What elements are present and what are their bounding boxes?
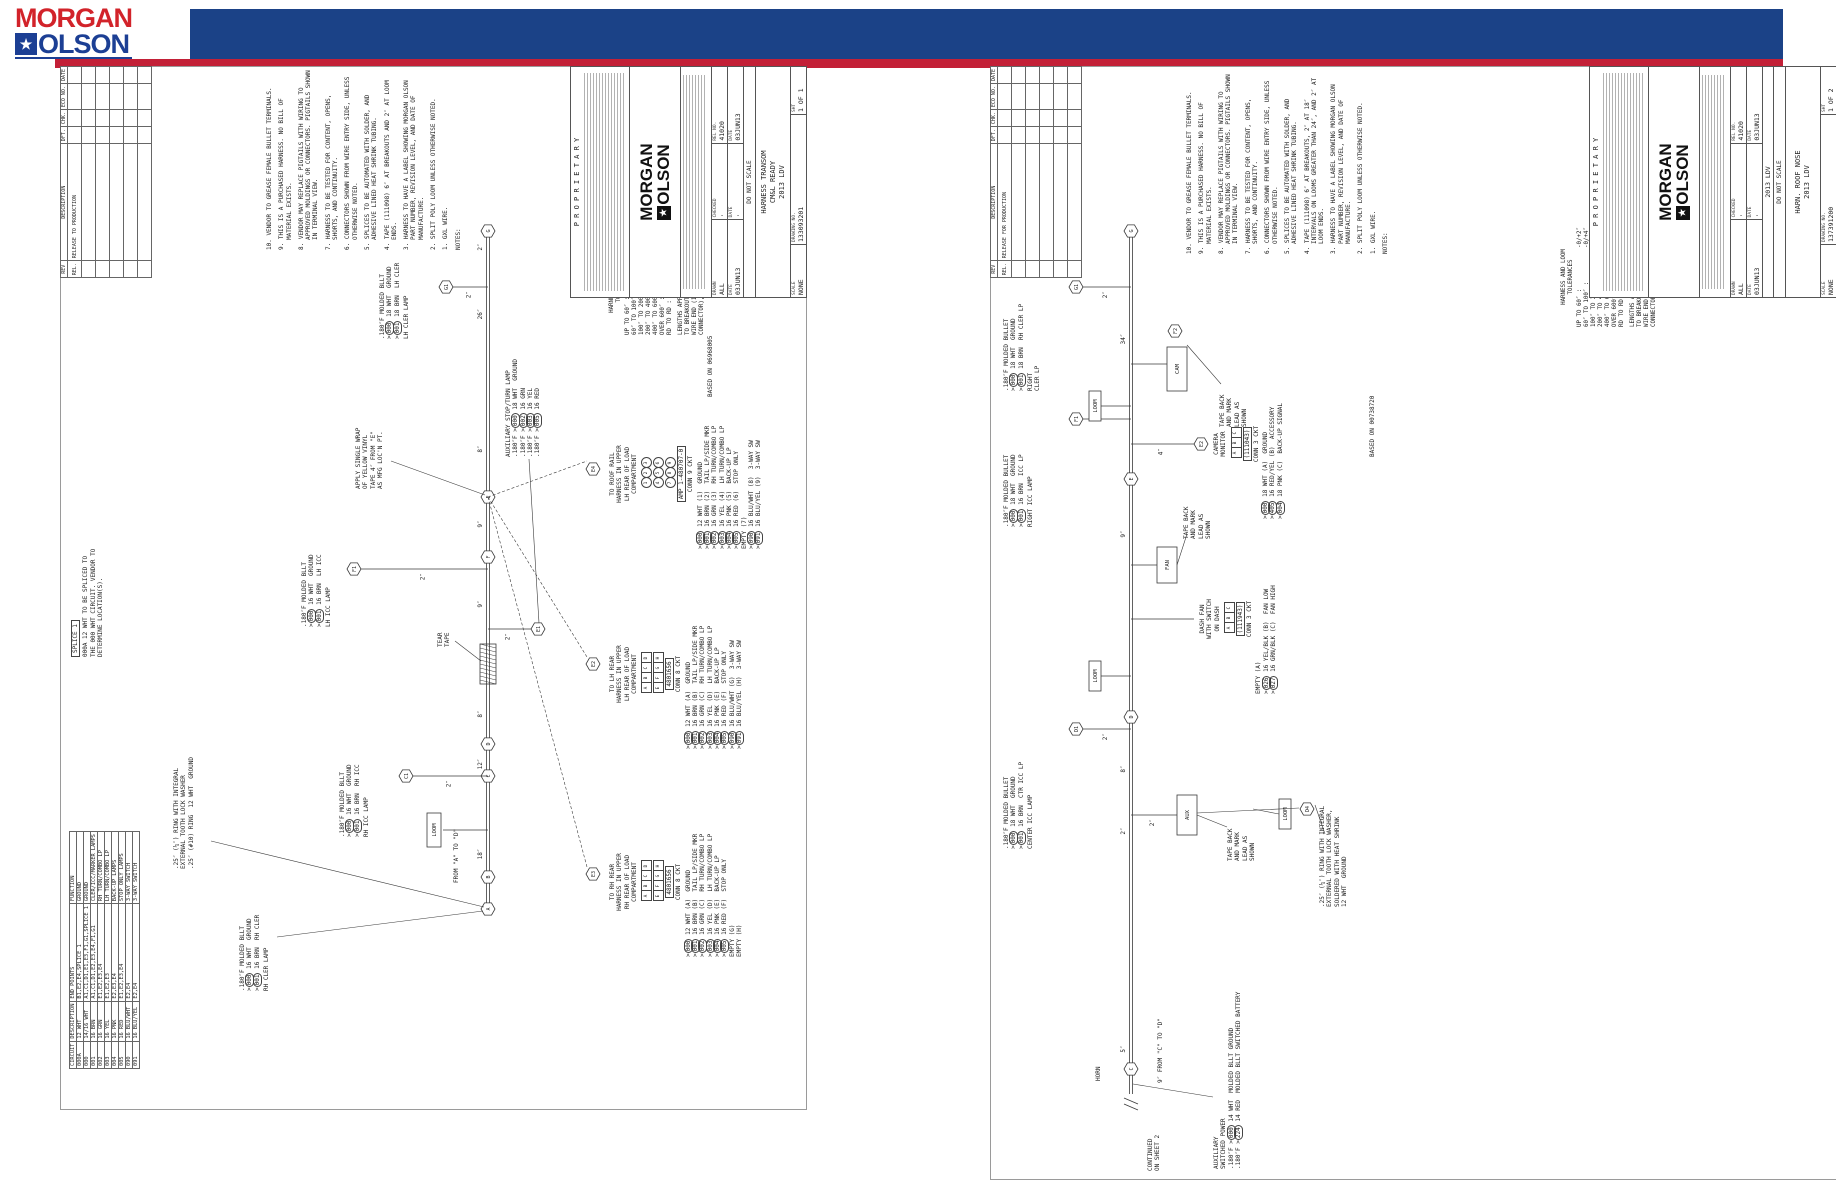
note-item: 10. VENDOR TO GREASE FEMALE BULLET TERMI… — [1186, 70, 1193, 254]
field-drawing-no: DRAWING NO. 133093201 — [791, 115, 806, 245]
circuit-row: 00516 REDE1,E2,E3,E4STOP ONLY LAMPS — [119, 832, 126, 1069]
svg-text:2″: 2″ — [1102, 733, 1109, 740]
title-block: P R O P R I E T A R Y MORGAN ★ OLSON DRA… — [570, 66, 807, 298]
circuit-cell: 16 GRN — [98, 1001, 105, 1041]
circuit-row: 00116 BRNA1,C1,D1,E2,E3,E4,F1,G1CLER/ICC… — [91, 832, 98, 1069]
circuit-cell: 12 WHT — [77, 1001, 84, 1041]
revision-cell — [138, 261, 152, 278]
svg-text:2″: 2″ — [466, 291, 473, 298]
svg-text:E1: E1 — [536, 626, 542, 632]
svg-text:5″: 5″ — [1120, 1045, 1127, 1052]
circuit-cell: 16 RED — [119, 1001, 126, 1041]
revision-cell — [82, 127, 96, 144]
tolerance-range: RD TO RD : — [667, 300, 674, 335]
circuit-row: 00014/16 WHTA1,C1,D1,E1,E3,F1,G1,SPLICE … — [84, 832, 91, 1069]
note-item: 3. HARNESS TO HAVE A LABEL SHOWING MORGA… — [1330, 70, 1352, 254]
svg-text:8″: 8″ — [477, 445, 484, 452]
revision-cell — [124, 67, 138, 84]
field-rel-no: REL NO. 41020 — [1731, 67, 1747, 144]
revision-cell: REL. — [998, 261, 1012, 278]
svg-text:D: D — [486, 742, 492, 745]
svg-text:34″: 34″ — [1120, 334, 1127, 345]
circuit-cell: 000 — [84, 1041, 91, 1068]
harness-lines: CDEGF2D4G12″F1D12″E24″2″CAMFANAUXLOOMLOO… — [1069, 225, 1325, 1110]
field-drawn-date: DATE 03JUN13 — [728, 220, 743, 297]
circuit-cell: 16 BLU/WHT — [126, 1001, 133, 1041]
revision-cell — [1040, 127, 1054, 144]
revision-cell — [1012, 261, 1026, 278]
header-navy-bar — [190, 9, 1783, 59]
revision-header-row: REVDESCRIPTIONDFT.CHK.ECO NO.DATE — [991, 67, 998, 278]
revision-cell — [1040, 110, 1054, 127]
circuit-header-cell: FUNCTION — [70, 832, 77, 904]
circuit-table: CIRCUITDESCRIPTIONEND POINTSFUNCTION000A… — [69, 831, 140, 1069]
revision-cell — [1068, 127, 1082, 144]
svg-text:2″: 2″ — [1102, 291, 1109, 298]
field-sheet: SHT 1 OF 2 — [1821, 67, 1836, 115]
proprietary-label: P R O P R I E T A R Y — [1592, 138, 1600, 227]
note-item: 4. TAPE (111098) 6″ AT BREAKOUTS, 2″ AT … — [1304, 70, 1326, 254]
tb-logo-olson-row: ★ OLSON — [655, 144, 672, 219]
proprietary-block: P R O P R I E T A R Y — [571, 67, 629, 297]
field-rel-no: REL NO. 41020 — [712, 67, 728, 144]
revision-cell — [1054, 144, 1068, 261]
svg-text:CAM: CAM — [1175, 363, 1181, 374]
circuit-cell: 090 — [126, 1041, 133, 1068]
circuit-cell: 000A — [77, 1041, 84, 1068]
revision-cell — [998, 127, 1012, 144]
revision-cell — [1054, 127, 1068, 144]
based-on-note: BASED ON 00738720 — [1369, 396, 1376, 457]
field-scale: SCALE NONE — [1821, 245, 1836, 297]
note-item: 5. SPLICES TO BE AUTOMATED WITH SOLDER, … — [364, 70, 379, 250]
star-icon: ★ — [15, 33, 37, 55]
circuit-row: 00416 PNKE2,E3,E4BACK-UP LAMPS — [112, 832, 119, 1069]
proprietary-label: P R O P R I E T A R Y — [573, 138, 581, 227]
svg-text:F: F — [486, 555, 492, 558]
revision-cell — [1026, 127, 1040, 144]
revision-cell — [110, 144, 124, 261]
revision-cell — [124, 144, 138, 261]
svg-text:E3: E3 — [591, 871, 597, 877]
field-scale: SCALE NONE — [791, 245, 806, 297]
revision-cell — [110, 67, 124, 84]
revision-cell: RELEASE TO PRODUCTION — [68, 144, 82, 261]
notes-label: NOTES: — [455, 70, 462, 250]
svg-text:8″: 8″ — [477, 710, 484, 717]
revision-cell — [1012, 84, 1026, 110]
revision-cell — [1012, 110, 1026, 127]
tb-logo-olson: OLSON — [655, 144, 672, 204]
revision-cell — [110, 84, 124, 110]
revision-cell — [110, 261, 124, 278]
revision-table-grid: REVDESCRIPTIONDFT.CHK.ECO NO.DATEREL.REL… — [990, 66, 1082, 278]
svg-text:E2: E2 — [1199, 441, 1205, 447]
svg-text:LOOM: LOOM — [1093, 399, 1099, 413]
standards-fine-print — [1702, 75, 1726, 289]
svg-text:A: A — [486, 907, 492, 910]
svg-text:F1: F1 — [1074, 416, 1080, 422]
revision-cell — [96, 110, 110, 127]
revision-cell — [96, 261, 110, 278]
note-item: 1. GXL WIRE. — [442, 70, 449, 250]
circuit-cell: 004 — [112, 1041, 119, 1068]
revision-row — [96, 67, 110, 278]
circuit-header-row: CIRCUITDESCRIPTIONEND POINTSFUNCTION — [70, 832, 77, 1069]
svg-text:LOOM: LOOM — [1093, 669, 1099, 683]
revision-header-cell: DESCRIPTION — [61, 144, 68, 261]
circuit-cell: GROUND — [77, 832, 84, 904]
drawing-sheet: ABCDFEGE4E2E3G12″F12″C12″E12″LOOM18″12″8… — [60, 66, 807, 1110]
note-item: 3. HARNESS TO HAVE A LABEL SHOWING MORGA… — [403, 70, 425, 250]
revision-cell — [138, 144, 152, 261]
circuit-header-cell: END POINTS — [70, 904, 77, 1001]
revision-cell — [138, 84, 152, 110]
svg-text:9″: 9″ — [477, 520, 484, 527]
star-icon: ★ — [657, 206, 671, 220]
tb-logo-olson: OLSON — [1674, 144, 1691, 204]
revision-row — [124, 67, 138, 278]
do-not-scale-label: DO NOT SCALE — [743, 67, 755, 297]
note-item: 6. CONNECTORS SHOWN FROM WIRE ENTRY SIDE… — [344, 70, 359, 250]
revision-cell — [1026, 84, 1040, 110]
circuit-cell: 16 YEL — [105, 1001, 112, 1041]
revision-row — [82, 67, 96, 278]
general-standards-block — [680, 67, 711, 297]
circuit-row: 000A12 WHTB1,E2,E4,SPLICE 1GROUND — [77, 832, 84, 1069]
revision-cell — [1040, 144, 1054, 261]
svg-text:E2: E2 — [591, 661, 597, 667]
circuit-cell: CLER/ICC/MARKER LAMPS — [91, 832, 98, 904]
revision-cell — [1068, 110, 1082, 127]
revision-cell — [110, 127, 124, 144]
circuit-cell: 16 BLU/YEL — [133, 1001, 140, 1041]
drawing-sheet: CDEGF2D4G12″F1D12″E24″2″CAMFANAUXLOOMLOO… — [990, 66, 1836, 1180]
revision-cell — [1040, 261, 1054, 278]
revision-header-cell: REV — [991, 261, 998, 278]
revision-row — [1012, 67, 1026, 278]
tolerance-row: UP TO 60″ :-0/+2″ — [1577, 227, 1584, 327]
circuit-cell: STOP ONLY LAMPS — [119, 832, 126, 904]
circuit-cell: E1,E2,E3,E4 — [119, 904, 126, 1001]
field-checked: CHECKED · — [1731, 144, 1747, 221]
revision-cell — [1068, 144, 1082, 261]
circuit-cell: 3-WAY SWITCH — [126, 832, 133, 904]
revision-table: REVDESCRIPTIONDFT.CHK.ECO NO.DATEREL.REL… — [990, 66, 1082, 278]
svg-text:F2: F2 — [1173, 328, 1179, 334]
title-block-logo: MORGAN ★ OLSON — [629, 67, 680, 297]
circuit-header-cell: DESCRIPTION — [70, 1001, 77, 1041]
svg-text:E4: E4 — [591, 466, 597, 472]
revision-header-cell: DESCRIPTION — [991, 144, 998, 261]
circuit-cell: 16 BRN — [91, 1001, 98, 1041]
tb-logo-olson-row: ★ OLSON — [1674, 144, 1691, 219]
revision-cell — [68, 127, 82, 144]
page: MORGAN ★ OLSON ABCDFEGE4E2E3G12″F12″C12″… — [0, 0, 1836, 1188]
circuit-cell: B1,E2,E4,SPLICE 1 — [77, 904, 84, 1001]
note-item: 9. THIS IS A PURCHASED HARNESS. NO BILL … — [1198, 70, 1213, 254]
drawing-title: HARNESS TRANSOM CM&L READY 2013 LDV — [755, 67, 790, 297]
circuit-cell: RH TURN/COMBO LP — [98, 832, 105, 904]
svg-text:LOOM: LOOM — [432, 823, 438, 837]
revision-header-cell: ECO NO. — [61, 84, 68, 110]
product-field: 2013 LDV — [1762, 67, 1773, 297]
revision-cell — [68, 84, 82, 110]
revision-cell — [82, 261, 96, 278]
revision-row — [1040, 67, 1054, 278]
field-drawing-no: DRAWING NO. 137391200 — [1821, 115, 1836, 245]
svg-text:G1: G1 — [444, 284, 450, 290]
svg-text:G: G — [486, 229, 492, 232]
note-item: 10. VENDOR TO GREASE FEMALE BULLET TERMI… — [266, 70, 273, 250]
note-item: 4. TAPE (111098) 6″ AT BREAKOUTS AND 2″ … — [384, 70, 399, 250]
revision-cell — [1026, 67, 1040, 84]
tolerance-range: OVER 600″ : — [660, 297, 667, 335]
revision-cell — [1012, 144, 1026, 261]
note-item: 9. THIS IS A PURCHASED HARNESS. NO BILL … — [278, 70, 293, 250]
notes-list: 10. VENDOR TO GREASE FEMALE BULLET TERMI… — [1186, 70, 1389, 254]
circuit-cell: 091 — [133, 1041, 140, 1068]
revision-row — [1054, 67, 1068, 278]
revision-cell — [96, 67, 110, 84]
tolerance-range: UP TO 60″ : — [1577, 289, 1584, 327]
note-item: 2. SPLIT POLY LOOM UNLESS OTHERWISE NOTE… — [1357, 70, 1364, 254]
revision-cell — [1068, 67, 1082, 84]
revision-cell — [1068, 84, 1082, 110]
splice-tag: SPLICE 1 — [71, 620, 80, 657]
proprietary-fine-print — [1603, 73, 1643, 291]
note-item: 1. GXL WIRE. — [1370, 70, 1377, 254]
field-checked: CHECKED · — [712, 144, 728, 221]
revision-cell — [82, 144, 96, 261]
revision-cell — [998, 84, 1012, 110]
title-block: P R O P R I E T A R Y MORGAN ★ OLSON DRA… — [1589, 66, 1836, 298]
title-block-numbers: SCALE NONE DRAWING NO. 137391200 SHT 1 O… — [1820, 67, 1836, 297]
revision-cell: RELEASE FOR PRODUCTION — [998, 144, 1012, 261]
svg-text:C: C — [1129, 1067, 1135, 1070]
svg-text:D1: D1 — [1074, 726, 1080, 732]
notes-list: 10. VENDOR TO GREASE FEMALE BULLET TERMI… — [266, 70, 462, 250]
star-icon: ★ — [1676, 206, 1690, 220]
svg-text:G1: G1 — [1074, 284, 1080, 290]
circuit-row: 00316 YELE1,E2,E3LH TURN/COMBO LP — [105, 832, 112, 1069]
tolerance-range: UP TO 60″ : — [625, 297, 632, 335]
revision-cell — [1054, 261, 1068, 278]
svg-text:G: G — [1129, 229, 1135, 232]
revision-cell — [1012, 67, 1026, 84]
general-standards-block — [1699, 67, 1730, 297]
svg-text:2″: 2″ — [477, 243, 484, 250]
revision-cell — [1026, 110, 1040, 127]
svg-text:E: E — [1129, 477, 1135, 480]
circuit-cell: BACK-UP LAMPS — [112, 832, 119, 904]
revision-cell — [138, 110, 152, 127]
field-sheet: SHT 1 OF 1 — [791, 67, 806, 115]
field-drawn: DRAWN ALL — [1731, 220, 1747, 297]
standards-fine-print — [683, 75, 707, 289]
field-rel-date: DATE 03JUN13 — [1747, 67, 1762, 144]
revision-row: REL.RELEASE FOR PRODUCTION — [998, 67, 1012, 278]
circuit-cell: E2,E4 — [126, 904, 133, 1001]
revision-row: REL.RELEASE TO PRODUCTION — [68, 67, 82, 278]
revision-cell — [1026, 144, 1040, 261]
revision-row — [1068, 67, 1082, 278]
revision-row — [138, 67, 152, 278]
note-item: 5. SPLICES TO BE AUTOMATED WITH SOLDER, … — [1284, 70, 1299, 254]
circuit-row: 00216 GRNE1,E2,E3,E4RH TURN/COMBO LP — [98, 832, 105, 1069]
logo-morgan: MORGAN — [15, 5, 132, 31]
circuit-row: 09116 BLU/YELE2,E43-WAY SWITCH — [133, 832, 140, 1069]
revision-cell — [68, 67, 82, 84]
svg-text:18″: 18″ — [477, 849, 484, 860]
svg-text:12″: 12″ — [477, 759, 484, 770]
revision-cell — [96, 144, 110, 261]
tb-logo-morgan: MORGAN — [638, 143, 655, 220]
do-not-scale-label: DO NOT SCALE — [1773, 67, 1785, 297]
revision-cell — [1012, 127, 1026, 144]
revision-header-cell: DATE — [991, 67, 998, 84]
revision-cell — [96, 84, 110, 110]
svg-text:D4: D4 — [1305, 806, 1311, 812]
svg-text:2″: 2″ — [1149, 819, 1156, 826]
revision-cell — [96, 127, 110, 144]
field-rel-date: DATE 03JUN13 — [728, 67, 743, 144]
svg-text:FAN: FAN — [1165, 560, 1171, 570]
revision-header-cell: DATE — [61, 67, 68, 84]
revision-cell — [1054, 110, 1068, 127]
splice-text: 000A 12 WHT TO BE SPLICED TO THE 000 WHT… — [82, 545, 104, 657]
circuit-cell: 005 — [119, 1041, 126, 1068]
circuit-cell: 3-WAY SWITCH — [133, 832, 140, 904]
drawing-title: HARN. ROOF NOSE 2013 LDV — [1785, 67, 1820, 297]
tolerance-title: HARNESS AND LOOM TOLERANCES — [1561, 227, 1575, 327]
field-drawn: DRAWN ALL — [712, 220, 728, 297]
circuit-header-cell: CIRCUIT — [70, 1041, 77, 1068]
revision-table-grid: REVDESCRIPTIONDFT.CHK.ECO NO.DATEREL.REL… — [60, 66, 152, 278]
circuit-cell: 002 — [98, 1041, 105, 1068]
circuit-cell: A1,C1,D1,E1,E3,F1,G1,SPLICE 1 — [84, 904, 91, 1001]
revision-cell — [82, 67, 96, 84]
note-item: 8. VENDOR MAY REPLACE PIGTAILS WITH WIRI… — [1218, 70, 1240, 254]
title-block-numbers: SCALE NONE DRAWING NO. 133093201 SHT 1 O… — [790, 67, 806, 297]
revision-cell — [1040, 84, 1054, 110]
revision-header-row: REVDESCRIPTIONDFT.CHK.ECO NO.DATE — [61, 67, 68, 278]
revision-cell — [110, 110, 124, 127]
revision-cell — [1054, 67, 1068, 84]
note-item: 7. HARNESS TO BE TESTED FOR CONTENT, OPE… — [325, 70, 340, 250]
revision-table: REVDESCRIPTIONDFT.CHK.ECO NO.DATEREL.REL… — [60, 66, 152, 278]
circuit-cell: A1,C1,D1,E2,E3,E4,F1,G1 — [91, 904, 98, 1001]
svg-text:26″: 26″ — [477, 309, 484, 320]
revision-cell — [998, 110, 1012, 127]
revision-cell — [138, 67, 152, 84]
field-checked-date: DATE · — [1747, 144, 1762, 221]
circuit-cell: 003 — [105, 1041, 112, 1068]
circuit-cell: E1,E2,E3 — [105, 904, 112, 1001]
revision-cell — [68, 110, 82, 127]
revision-cell — [998, 67, 1012, 84]
revision-cell — [138, 127, 152, 144]
svg-text:D: D — [1129, 715, 1135, 718]
proprietary-fine-print — [584, 73, 624, 291]
revision-cell — [1026, 261, 1040, 278]
revision-cell — [1040, 67, 1054, 84]
circuit-cell: E2,E3,E4 — [112, 904, 119, 1001]
svg-text:2″: 2″ — [505, 633, 512, 640]
title-block-fields: DRAWN ALL CHECKED · REL NO. 41020 DATE 0… — [1730, 67, 1762, 297]
tolerance-value: -0/+2″ — [1577, 227, 1584, 248]
logo-olson: OLSON — [38, 31, 129, 57]
note-item: 2. SPLIT POLY LOOM UNLESS OTHERWISE NOTE… — [430, 70, 437, 250]
revision-cell: REL. — [68, 261, 82, 278]
revision-cell — [124, 127, 138, 144]
svg-text:C1: C1 — [404, 773, 410, 779]
circuit-cell: 14/16 WHT — [84, 1001, 91, 1041]
circuit-cell: GROUND — [84, 832, 91, 904]
morgan-olson-logo: MORGAN ★ OLSON — [13, 5, 134, 59]
revision-cell — [82, 84, 96, 110]
revision-header-cell: CHK. — [991, 110, 998, 127]
revision-header-cell: DFT. — [991, 127, 998, 144]
circuit-cell: E2,E4 — [133, 904, 140, 1001]
revision-cell — [1068, 261, 1082, 278]
tb-logo-morgan: MORGAN — [1657, 143, 1674, 220]
revision-cell — [82, 110, 96, 127]
harness-lines: ABCDFEGE4E2E3G12″F12″C12″E12″LOOM18″12″8… — [211, 225, 600, 937]
revision-header-cell: ECO NO. — [991, 84, 998, 110]
note-item: 7. HARNESS TO BE TESTED FOR CONTENT, OPE… — [1245, 70, 1260, 254]
revision-cell — [124, 84, 138, 110]
circuit-table-grid: CIRCUITDESCRIPTIONEND POINTSFUNCTION000A… — [69, 831, 140, 1069]
svg-text:2″: 2″ — [420, 573, 427, 580]
splice-note: SPLICE 1000A 12 WHT TO BE SPLICED TO THE… — [71, 545, 104, 657]
svg-text:9″: 9″ — [477, 600, 484, 607]
revision-row — [1026, 67, 1040, 278]
note-item: 6. CONNECTORS SHOWN FROM WIRE ENTRY SIDE… — [1264, 70, 1279, 254]
field-checked-date: DATE · — [728, 144, 743, 221]
circuit-cell: 16 PNK — [112, 1001, 119, 1041]
revision-cell — [1054, 84, 1068, 110]
circuit-cell: 001 — [91, 1041, 98, 1068]
svg-text:AUX: AUX — [1185, 809, 1191, 820]
title-block-fields: DRAWN ALL CHECKED · REL NO. 41020 DATE 0… — [711, 67, 743, 297]
circuit-cell: LH TURN/COMBO LP — [105, 832, 112, 904]
title-block-logo: MORGAN ★ OLSON — [1648, 67, 1699, 297]
logo-olson-row: ★ OLSON — [15, 31, 132, 59]
svg-text:B: B — [486, 875, 492, 878]
svg-text:4″: 4″ — [1158, 448, 1165, 455]
svg-text:9″: 9″ — [1120, 530, 1127, 537]
svg-text:2″: 2″ — [446, 780, 453, 787]
circuit-row: 09016 BLU/WHTE2,E43-WAY SWITCH — [126, 832, 133, 1069]
revision-header-cell: REV — [61, 261, 68, 278]
note-item: 8. VENDOR MAY REPLACE PIGTAILS WITH WIRI… — [298, 70, 320, 250]
svg-text:2″: 2″ — [1120, 827, 1127, 834]
proprietary-block: P R O P R I E T A R Y — [1590, 67, 1648, 297]
revision-cell — [124, 261, 138, 278]
revision-row — [110, 67, 124, 278]
field-drawn-date: DATE 03JUN13 — [1747, 220, 1762, 297]
circuit-cell: E1,E2,E3,E4 — [98, 904, 105, 1001]
revision-cell — [124, 110, 138, 127]
notes-label: NOTES: — [1382, 70, 1389, 254]
svg-text:8″: 8″ — [1120, 765, 1127, 772]
based-on-note: BASED ON 06968005 — [707, 336, 714, 397]
svg-text:F1: F1 — [352, 566, 358, 572]
revision-header-cell: DFT. — [61, 127, 68, 144]
revision-header-cell: CHK. — [61, 110, 68, 127]
